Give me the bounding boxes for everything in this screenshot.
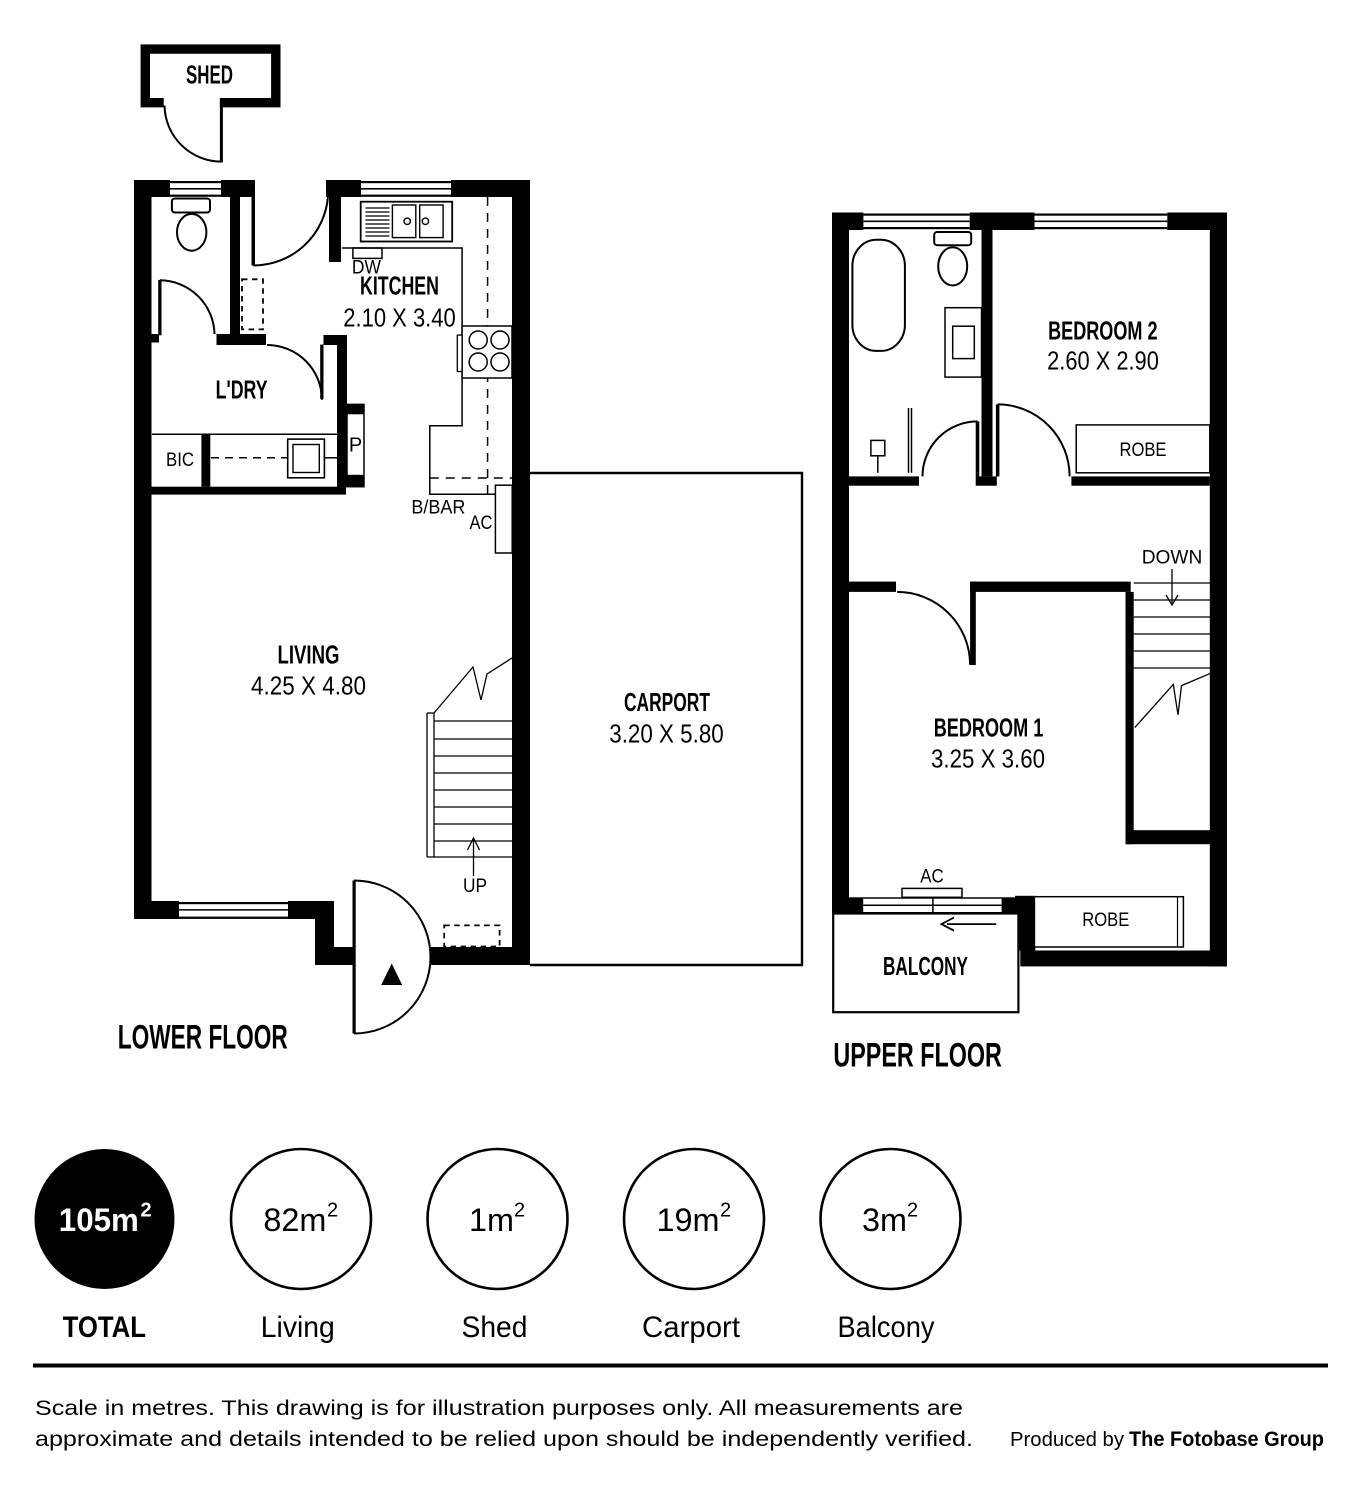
- svg-text:UP: UP: [463, 875, 487, 897]
- svg-text:1m: 1m: [469, 1202, 514, 1238]
- svg-text:2: 2: [514, 1200, 525, 1222]
- svg-text:105m: 105m: [59, 1202, 139, 1238]
- svg-text:82m: 82m: [263, 1202, 326, 1238]
- svg-text:approximate and details intend: approximate and details intended to be r…: [35, 1427, 973, 1451]
- svg-text:SHED: SHED: [186, 60, 233, 90]
- svg-text:2: 2: [140, 1200, 151, 1222]
- svg-text:P: P: [349, 435, 362, 457]
- svg-text:3.20 X 5.80: 3.20 X 5.80: [609, 719, 724, 749]
- svg-text:BEDROOM 2: BEDROOM 2: [1048, 315, 1157, 345]
- svg-text:L'DRY: L'DRY: [216, 377, 268, 405]
- svg-text:DOWN: DOWN: [1142, 547, 1203, 569]
- svg-text:Carport: Carport: [642, 1311, 741, 1344]
- svg-text:AC: AC: [470, 513, 493, 534]
- svg-text:Scale in metres. This drawing: Scale in metres. This drawing is for ill…: [35, 1396, 963, 1420]
- svg-text:3.25 X 3.60: 3.25 X 3.60: [931, 744, 1045, 774]
- svg-text:B/BAR: B/BAR: [411, 497, 465, 519]
- svg-text:ROBE: ROBE: [1120, 439, 1167, 461]
- svg-text:2: 2: [907, 1200, 918, 1222]
- svg-text:CARPORT: CARPORT: [624, 687, 710, 717]
- svg-text:Shed: Shed: [462, 1311, 528, 1344]
- svg-text:2.10 X 3.40: 2.10 X 3.40: [343, 303, 456, 333]
- svg-text:LOWER FLOOR: LOWER FLOOR: [118, 1019, 288, 1057]
- svg-text:Produced by: Produced by: [1010, 1429, 1124, 1451]
- svg-text:BALCONY: BALCONY: [883, 951, 968, 981]
- svg-text:BIC: BIC: [166, 449, 194, 471]
- svg-text:UPPER FLOOR: UPPER FLOOR: [833, 1036, 1002, 1074]
- svg-text:TOTAL: TOTAL: [63, 1311, 146, 1344]
- svg-text:4.25 X 4.80: 4.25 X 4.80: [251, 671, 366, 701]
- svg-text:ROBE: ROBE: [1082, 909, 1129, 931]
- svg-text:The Fotobase Group: The Fotobase Group: [1129, 1428, 1324, 1451]
- svg-text:2: 2: [327, 1200, 338, 1222]
- svg-text:2: 2: [720, 1200, 731, 1222]
- svg-text:AC: AC: [920, 866, 944, 888]
- svg-text:3m: 3m: [862, 1202, 907, 1238]
- svg-text:KITCHEN: KITCHEN: [360, 271, 439, 301]
- svg-text:Balcony: Balcony: [838, 1311, 935, 1344]
- svg-text:2.60 X 2.90: 2.60 X 2.90: [1047, 345, 1159, 375]
- svg-text:BEDROOM 1: BEDROOM 1: [934, 712, 1044, 742]
- svg-text:Living: Living: [261, 1311, 335, 1344]
- svg-text:LIVING: LIVING: [278, 642, 340, 670]
- svg-text:19m: 19m: [657, 1202, 720, 1238]
